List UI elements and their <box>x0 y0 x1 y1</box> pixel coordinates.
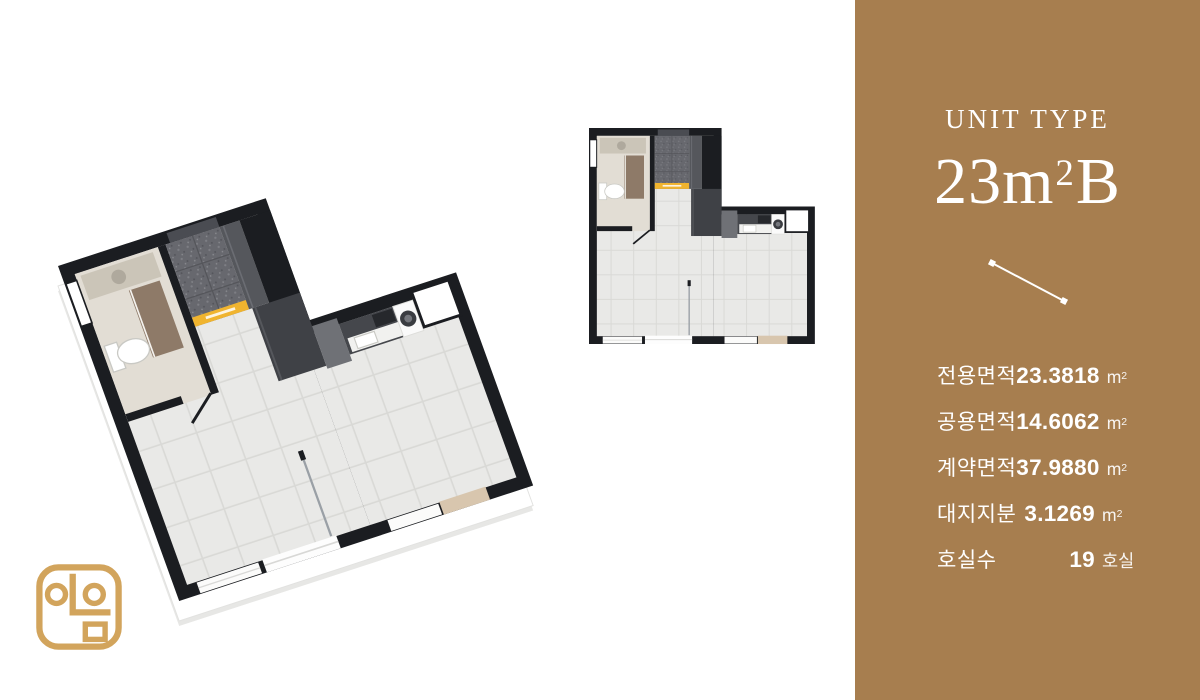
spec-value: 23.3818 <box>1016 363 1099 389</box>
unit-size-superscript: 2 <box>1055 152 1074 193</box>
ieum-logo-icon <box>34 560 124 654</box>
spec-unit: m2 <box>1107 413 1142 434</box>
spec-row-contract-area: 계약면적 37.9880 m2 <box>937 452 1142 478</box>
spec-row-common-area: 공용면적 14.6062 m2 <box>937 406 1142 432</box>
spec-label: 전용면적 <box>937 360 1016 390</box>
spec-unit: 호실 <box>1102 548 1142 573</box>
spec-row-land-share: 대지지분 3.1269 m2 <box>937 498 1142 524</box>
spec-row-exclusive-area: 전용면적 23.3818 m2 <box>937 360 1142 386</box>
page: UNIT TYPE 23m2B 전용면적 23.3818 m2 공용면적 14.… <box>0 0 1200 700</box>
spec-label: 계약면적 <box>937 452 1016 482</box>
spec-label: 호실수 <box>937 544 996 574</box>
unit-type-heading: UNIT TYPE <box>855 104 1200 135</box>
unit-size-title: 23m2B <box>855 149 1200 215</box>
floorplan-2d <box>589 128 815 344</box>
unit-info-sidebar: UNIT TYPE 23m2B 전용면적 23.3818 m2 공용면적 14.… <box>855 0 1200 700</box>
floorplan-3d <box>58 150 533 626</box>
spec-value: 14.6062 <box>1016 409 1099 435</box>
spec-label: 대지지분 <box>937 498 1016 528</box>
spec-row-room-count: 호실수 19 호실 <box>937 544 1142 570</box>
unit-size-suffix: B <box>1076 145 1121 218</box>
unit-size-base: 23m <box>934 145 1054 218</box>
spec-unit: m2 <box>1107 459 1142 480</box>
spec-value: 3.1269 <box>1016 501 1095 527</box>
spec-value: 19 <box>996 547 1095 573</box>
spec-unit: m2 <box>1107 367 1142 388</box>
spec-value: 37.9880 <box>1016 455 1099 481</box>
spec-table: 전용면적 23.3818 m2 공용면적 14.6062 m2 계약면적 37.… <box>937 360 1142 590</box>
spec-unit: m2 <box>1102 505 1142 526</box>
spec-label: 공용면적 <box>937 406 1016 436</box>
floorplan-canvas <box>0 0 855 700</box>
pointer-arrow-icon <box>983 254 1075 312</box>
